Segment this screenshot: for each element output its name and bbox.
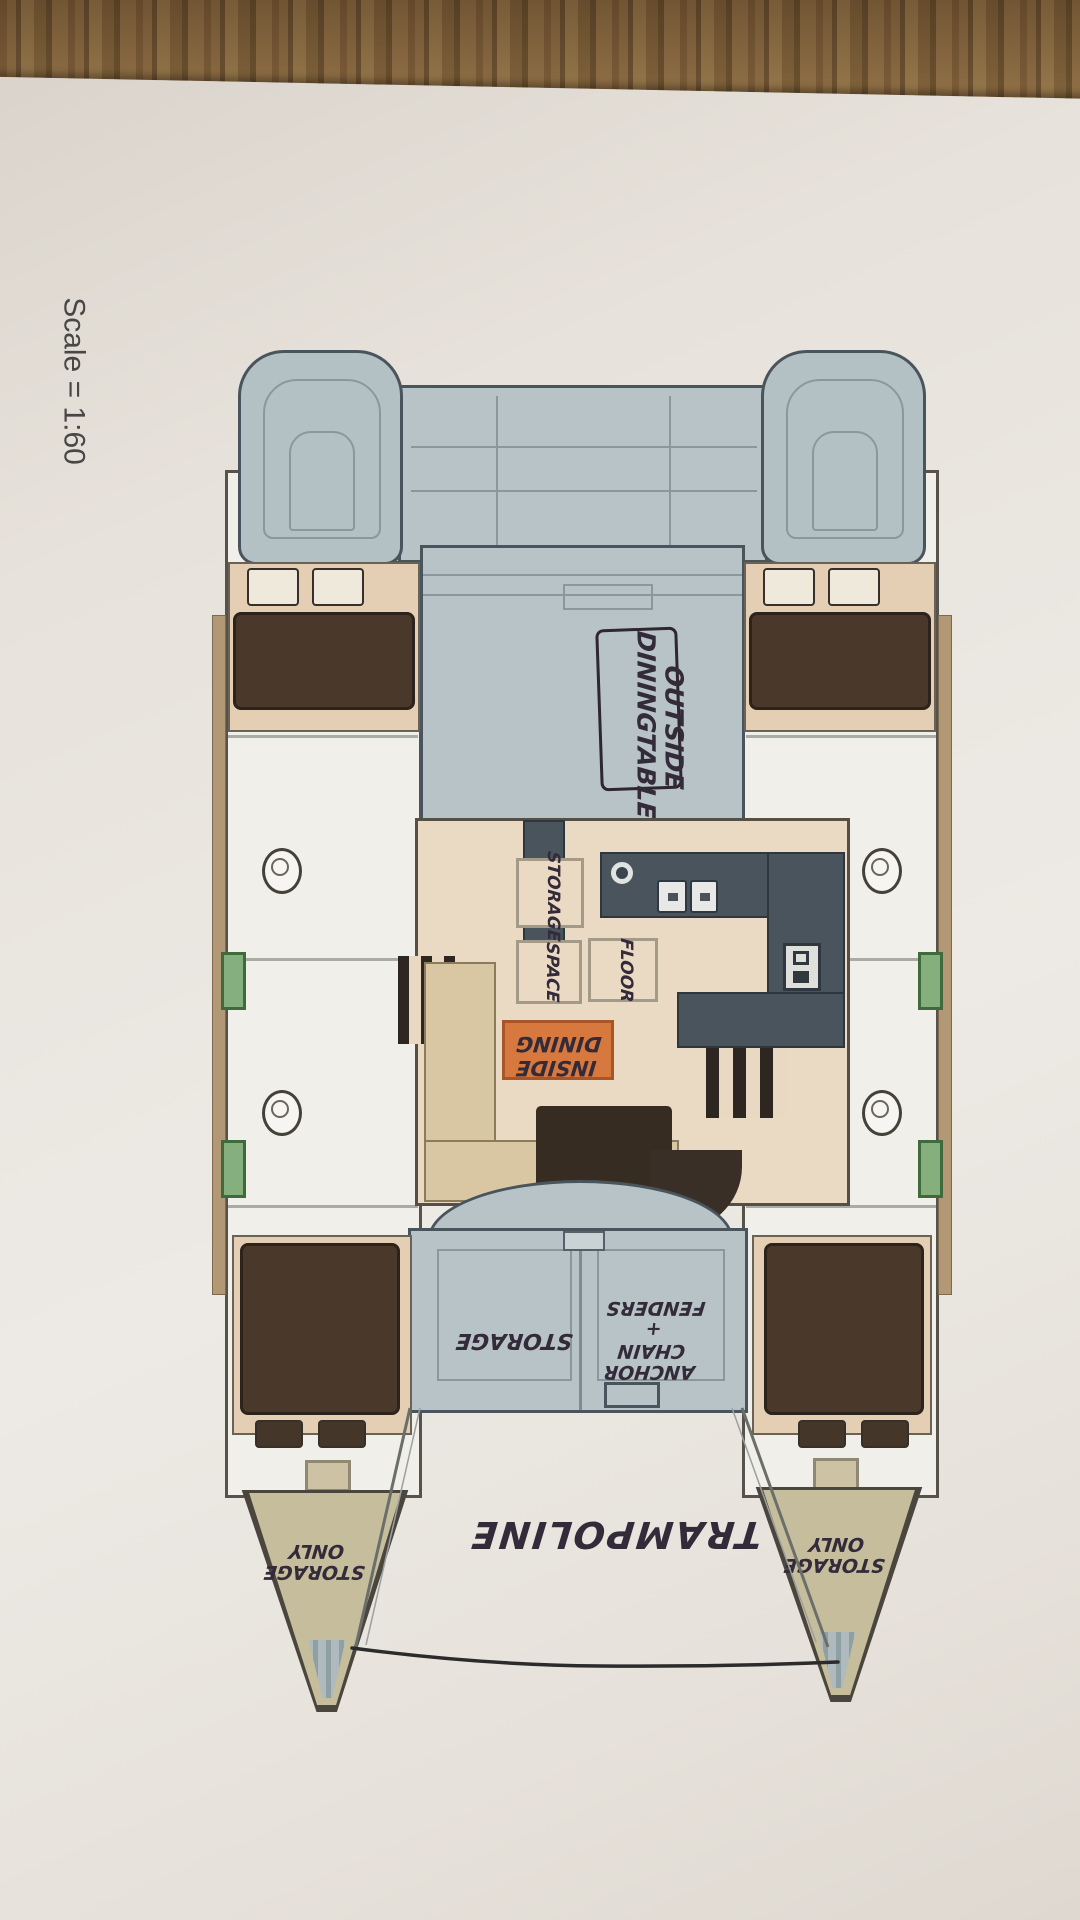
anchor-line1: ANCHOR xyxy=(592,1361,706,1382)
port-helm-pod xyxy=(238,350,403,565)
cockpit-bench xyxy=(563,584,653,610)
trampoline-label: TRAMPOLINE xyxy=(519,1505,764,1555)
starboard-partition-1 xyxy=(746,735,936,738)
port-toilet-aft xyxy=(262,848,302,894)
starboard-toilet-fwd xyxy=(862,1090,902,1136)
port-partition-1 xyxy=(228,735,418,738)
galley-sink-2 xyxy=(690,880,718,913)
starboard-aft-bed xyxy=(749,612,931,710)
starboard-aft-pillow-2 xyxy=(828,568,880,606)
starboard-hull-hatch-1 xyxy=(918,952,943,1010)
inside-dining-line1: INSIDE xyxy=(499,1055,613,1079)
stove-burner-icon xyxy=(611,862,633,884)
outside-dining-line1: OUTSIDE xyxy=(660,621,688,833)
starboard-helm-pod xyxy=(761,350,926,565)
starboard-companionway-steps xyxy=(706,1048,786,1118)
galley-fwd-counter xyxy=(677,992,845,1048)
inside-dining-line2: DINING xyxy=(502,1032,616,1056)
bowsprit-fitting xyxy=(563,1231,605,1251)
port-aft-pillow-2 xyxy=(312,568,364,606)
port-toilet-fwd xyxy=(262,1090,302,1136)
port-partition-3 xyxy=(228,1205,418,1208)
anchor-line3: + xyxy=(597,1318,711,1339)
starboard-toilet-aft xyxy=(862,848,902,894)
storage-hatch-label: STORAGE xyxy=(538,850,562,936)
port-aft-bed xyxy=(233,612,415,710)
starboard-aft-pillow-1 xyxy=(763,568,815,606)
anchor-line4: FENDERS xyxy=(599,1297,713,1318)
anchor-line2: CHAIN xyxy=(594,1339,708,1360)
galley-sink-1 xyxy=(657,880,687,913)
port-hull-hatch-1 xyxy=(221,952,246,1010)
stern-center-console xyxy=(398,385,768,563)
port-aft-pillow-1 xyxy=(247,568,299,606)
bow-deck-storage-label: STORAGE xyxy=(453,1318,577,1352)
port-bow-locker-outline xyxy=(437,1249,572,1381)
aft-cockpit xyxy=(420,545,745,831)
port-fwd-window-1 xyxy=(255,1420,303,1448)
inside-dining-label: INSIDE DINING xyxy=(499,1023,617,1079)
anchor-locker-label: ANCHOR CHAIN + FENDERS xyxy=(592,1270,716,1382)
catamaran-floor-plan: OUTSIDE DININGTABLE xyxy=(0,0,1080,1920)
port-hull-hatch-2 xyxy=(221,1140,246,1198)
port-partition-2 xyxy=(228,958,418,961)
outside-dining-line2: DININGTABLE xyxy=(632,619,660,831)
photo-of-catamaran-deck-plan: Scale = 1:60 xyxy=(0,0,1080,1920)
galley-stove xyxy=(783,943,821,991)
outside-dining-label: OUTSIDE DININGTABLE xyxy=(593,615,688,833)
space-hatch-label: SPACE xyxy=(537,936,561,1008)
floor-hatch-label: FLOOR xyxy=(611,934,635,1006)
starboard-hull-hatch-2 xyxy=(918,1140,943,1198)
salon-bench-left xyxy=(424,962,496,1157)
